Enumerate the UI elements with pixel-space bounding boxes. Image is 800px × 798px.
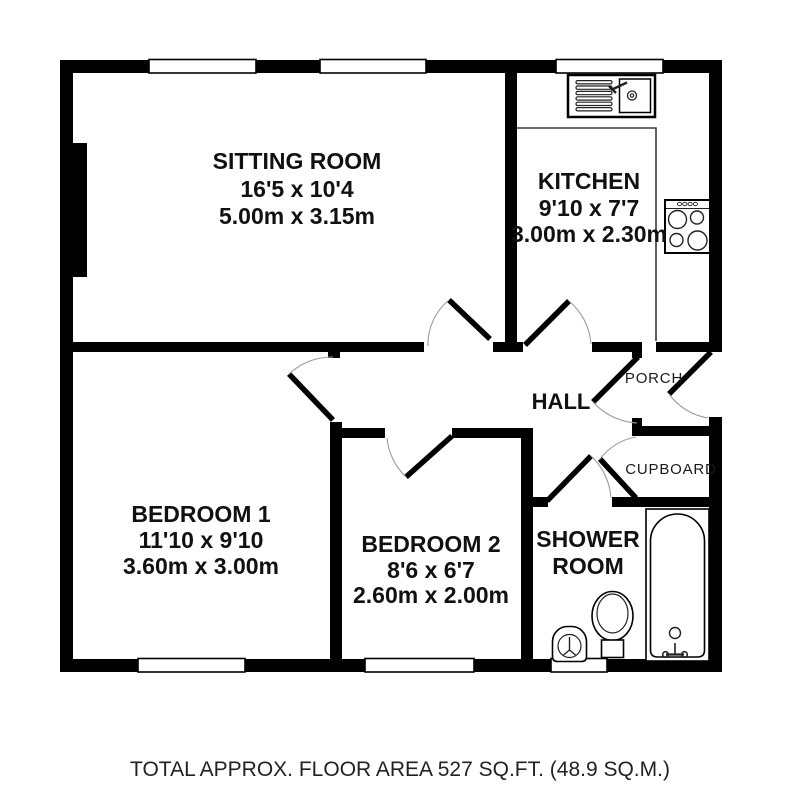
wall-exterior-left [60, 60, 73, 672]
door-kitchen [525, 301, 569, 345]
sitting-room-dims-imperial: 16'5 x 10'4 [240, 176, 353, 202]
door-bedroom1 [289, 374, 333, 420]
wall-cupboard-bottom [612, 497, 709, 507]
bedroom2-dims-metric: 2.60m x 2.00m [353, 582, 509, 608]
bath-icon [646, 509, 709, 661]
floor-plan-page: SITTING ROOM 16'5 x 10'4 5.00m x 3.15m K… [0, 0, 800, 798]
wall-porch-door-stub [632, 342, 642, 358]
hob-icon [665, 200, 710, 253]
wall-cupboard-top-stub [632, 418, 642, 436]
sitting-room-label: SITTING ROOM [213, 148, 382, 174]
wall-kitchen-bottom-right [656, 342, 722, 352]
sitting-room-dims-metric: 5.00m x 3.15m [219, 203, 375, 229]
wall-exterior-right-lower [709, 417, 722, 672]
kitchen-dims-imperial: 9'10 x 7'7 [539, 195, 639, 221]
floor-plan-drawing: SITTING ROOM 16'5 x 10'4 5.00m x 3.15m K… [0, 0, 800, 798]
room-labels: SITTING ROOM 16'5 x 10'4 5.00m x 3.15m K… [123, 148, 717, 608]
wall-sitting-hall [72, 342, 424, 352]
window-sitting-room-1 [149, 60, 256, 74]
toilet-cistern [602, 640, 624, 658]
toilet-icon [592, 592, 633, 658]
window-kitchen [556, 60, 663, 74]
bedroom2-label: BEDROOM 2 [361, 531, 500, 557]
wash-basin-icon [553, 627, 587, 662]
bath-tub [651, 514, 705, 657]
wall-chimney-breast [72, 143, 87, 277]
porch-label: PORCH [625, 370, 683, 387]
door-swing-sitting-room [428, 300, 449, 346]
bedroom2-dims-imperial: 8'6 x 6'7 [387, 557, 475, 583]
wall-bed1-bed2-divider [330, 422, 342, 660]
door-swing-bedroom2 [387, 438, 406, 477]
cupboard-label: CUPBOARD [625, 461, 716, 478]
door-swing-bedroom1 [289, 357, 333, 374]
kitchen-label: KITCHEN [538, 168, 640, 194]
shower-room-label-line2: ROOM [552, 553, 624, 579]
door-bedroom2 [406, 436, 452, 477]
kitchen-dims-metric: 3.00m x 2.30m [511, 221, 667, 247]
wall-kitchen-bottom-stub [493, 342, 523, 352]
wall-kitchen-left [505, 72, 517, 352]
kitchen-sink-icon [568, 75, 655, 117]
wall-bed2-top-right [452, 428, 533, 438]
window-bedroom1 [138, 659, 245, 673]
bedroom1-dims-imperial: 11'10 x 9'10 [139, 527, 264, 553]
door-swing-cupboard [600, 437, 636, 459]
wall-bed1-door-stub [328, 342, 340, 358]
total-floor-area-text: TOTAL APPROX. FLOOR AREA 527 SQ.FT. (48.… [130, 758, 670, 781]
bedroom1-dims-metric: 3.60m x 3.00m [123, 553, 279, 579]
door-swing-front-entrance [669, 394, 708, 418]
window-sitting-room-2 [320, 60, 426, 74]
door-swing-kitchen [569, 301, 591, 344]
door-sitting-room [449, 300, 490, 339]
bedroom1-label: BEDROOM 1 [131, 501, 271, 527]
window-bedroom2 [365, 659, 474, 673]
wall-cupboard-top [632, 426, 709, 436]
door-swing-hall-porch [593, 402, 637, 423]
hall-label: HALL [532, 389, 591, 414]
wall-bed2-shower-divider [521, 428, 533, 660]
door-shower-room [547, 456, 591, 501]
wall-bed2-top-left [330, 428, 385, 438]
shower-room-label-line1: SHOWER [536, 526, 640, 552]
